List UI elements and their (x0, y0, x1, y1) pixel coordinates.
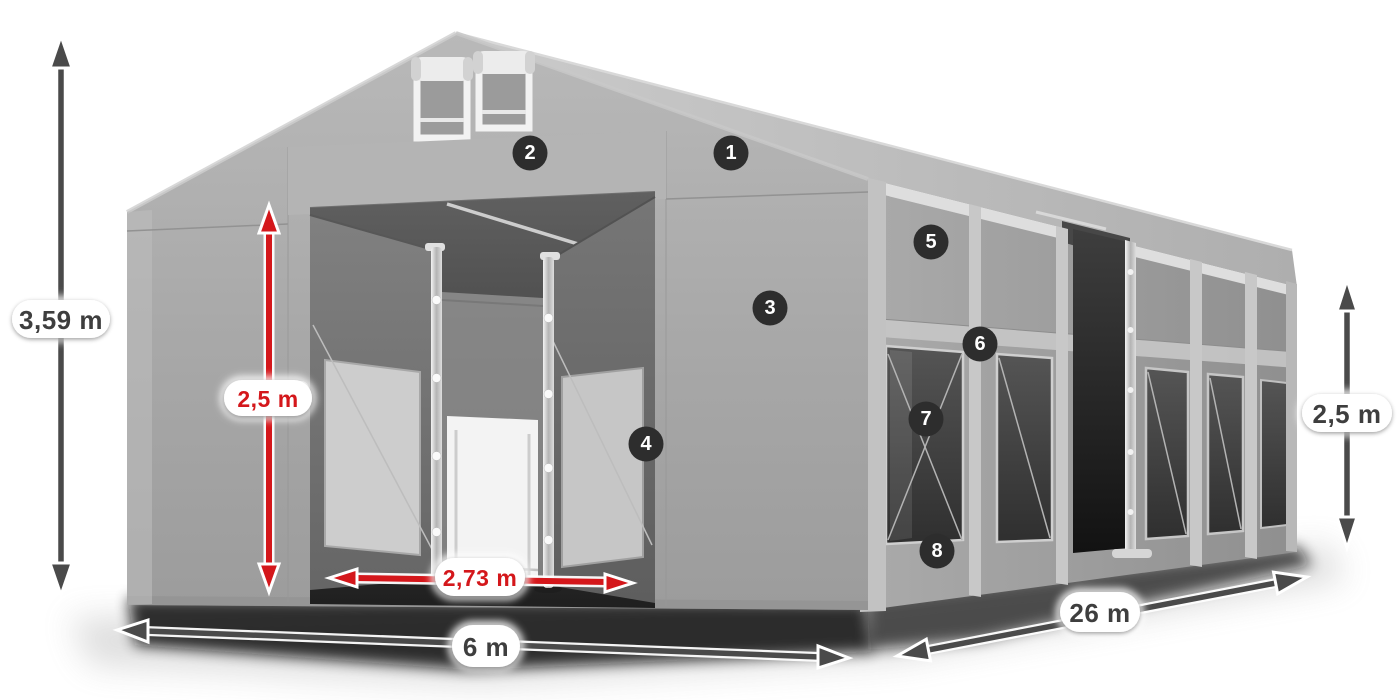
badge-number: 6 (974, 333, 985, 355)
feature-badge-5[interactable]: 5 (914, 225, 949, 260)
badge-number: 2 (524, 142, 535, 164)
door-window (325, 360, 420, 555)
side-window (1261, 380, 1287, 528)
badge-number: 4 (640, 433, 652, 455)
feature-badge-2[interactable]: 2 (513, 136, 548, 171)
feature-badge-3[interactable]: 3 (753, 291, 788, 326)
feature-badge-8[interactable]: 8 (920, 534, 955, 569)
entrance-height-label: 2,5 m (220, 376, 316, 420)
svg-text:3,59 m: 3,59 m (19, 305, 103, 335)
gable-vent-left (411, 57, 473, 138)
svg-text:2,73 m: 2,73 m (443, 565, 518, 591)
pole-foot (1112, 549, 1152, 558)
badge-number: 8 (931, 540, 942, 562)
tent-illustration: 1 2 3 4 5 6 7 8 (0, 0, 1400, 700)
badge-number: 1 (725, 142, 736, 164)
feature-badge-4[interactable]: 4 (629, 427, 664, 462)
entrance-right-door (548, 197, 655, 603)
svg-text:2,5 m: 2,5 m (1313, 399, 1382, 429)
entrance-width-label: 2,73 m (431, 554, 529, 600)
total-height-label: 3,59 m (8, 296, 114, 342)
length-label: 26 m (1056, 588, 1144, 636)
svg-text:2,5 m: 2,5 m (237, 386, 298, 412)
svg-text:6 m: 6 m (463, 632, 509, 662)
badge-number: 3 (764, 297, 775, 319)
side-door-pole (1125, 240, 1136, 556)
front-width-label: 6 m (448, 621, 524, 671)
door-window (562, 368, 643, 567)
entrance-left-door (310, 215, 437, 590)
total-height-arrow: 3,59 m (8, 36, 114, 595)
entrance-opening (293, 192, 655, 608)
svg-text:26 m: 26 m (1069, 598, 1130, 628)
feature-badge-1[interactable]: 1 (714, 136, 749, 171)
side-height-arrow: 2,5 m (1298, 280, 1396, 548)
gable-vent-right (473, 51, 535, 128)
badge-number: 5 (925, 231, 936, 253)
side-height-label: 2,5 m (1298, 390, 1396, 436)
feature-badge-7[interactable]: 7 (909, 402, 944, 437)
badge-number: 7 (920, 408, 931, 430)
feature-badge-6[interactable]: 6 (963, 327, 998, 362)
tent-dimension-diagram: 1 2 3 4 5 6 7 8 (0, 0, 1400, 700)
